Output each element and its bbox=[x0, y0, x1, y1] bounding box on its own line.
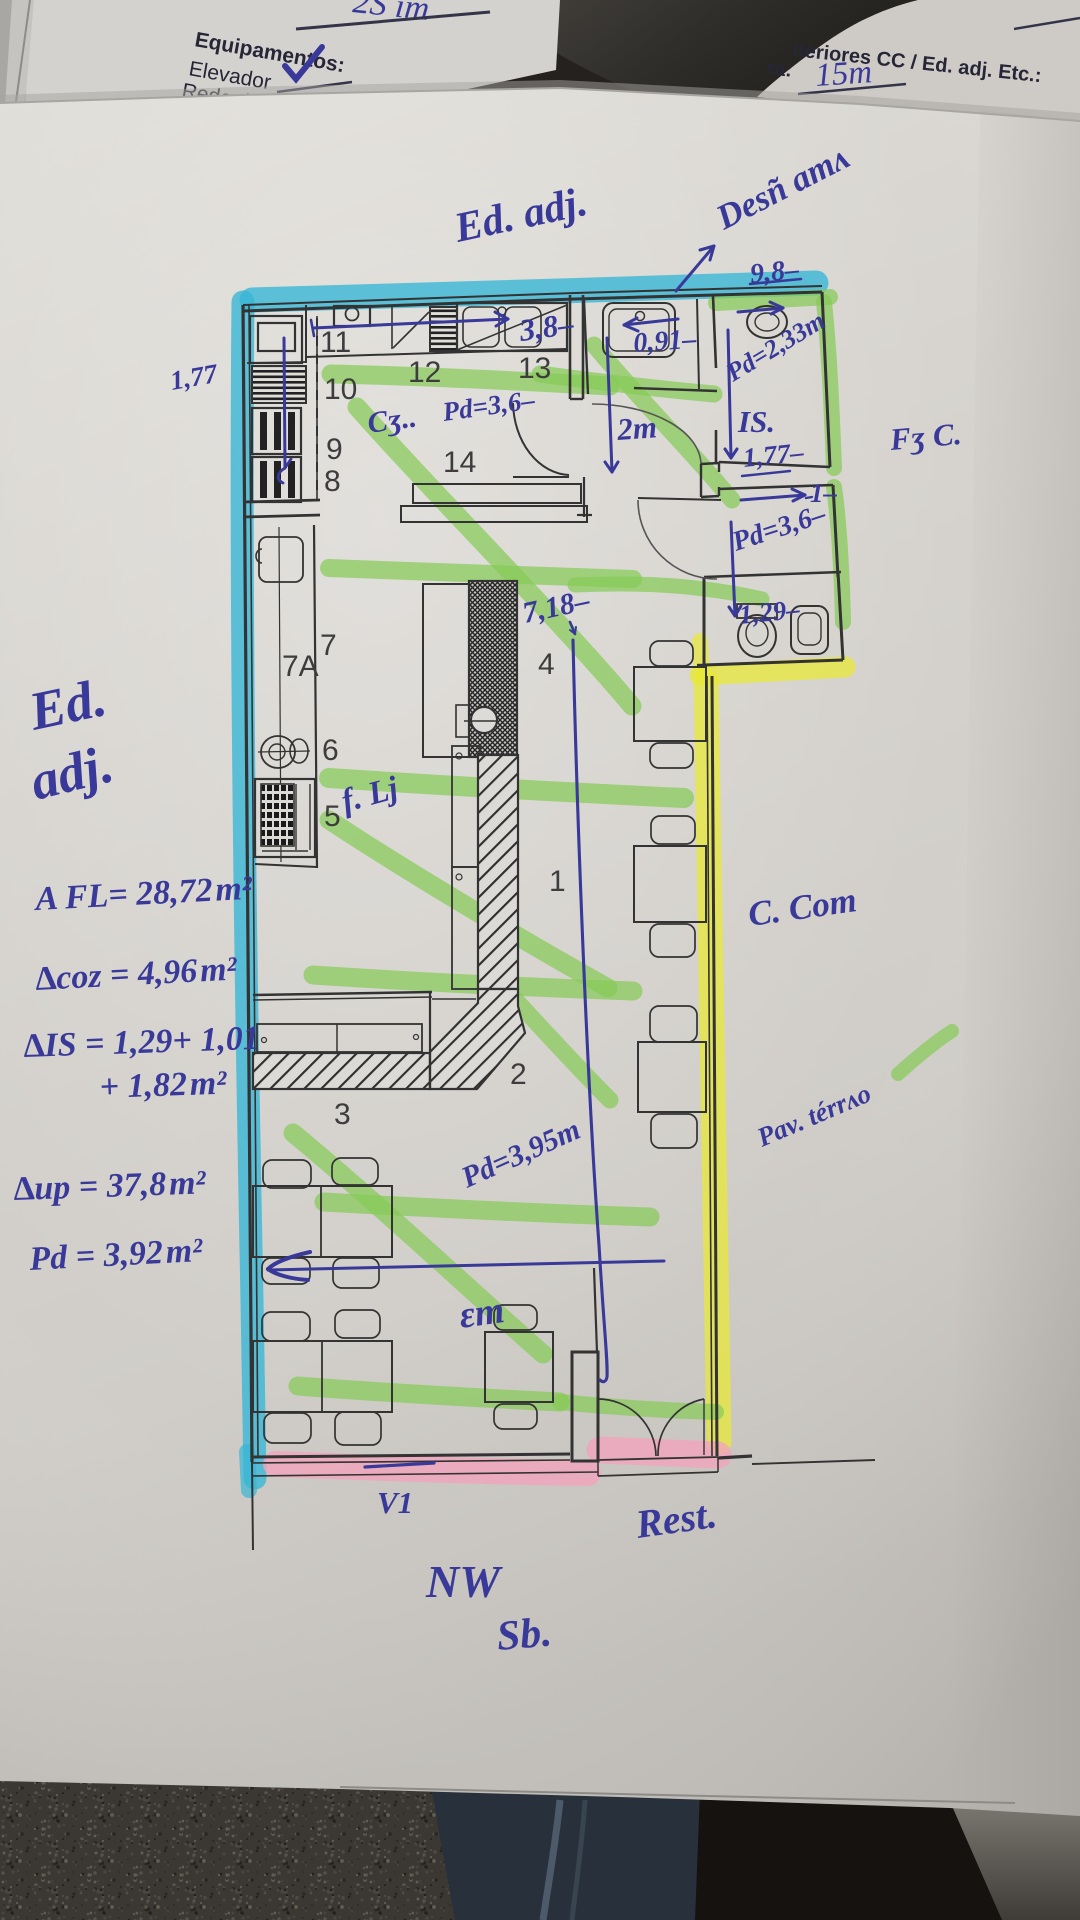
svg-text:Pd=3,6–: Pd=3,6– bbox=[440, 384, 537, 427]
svg-text:A FL= 28,72 m²: A FL= 28,72 m² bbox=[32, 870, 253, 918]
svg-text:5: 5 bbox=[324, 800, 341, 833]
svg-text:∆coz = 4,96 m²: ∆coz = 4,96 m² bbox=[34, 950, 238, 998]
svg-text:V1: V1 bbox=[377, 1485, 413, 1520]
svg-text:9,8–: 9,8– bbox=[748, 254, 800, 290]
svg-text:7A: 7A bbox=[282, 650, 319, 683]
svg-text:∆IS = 1,29+ 1,01: ∆IS = 1,29+ 1,01 bbox=[23, 1020, 260, 1065]
svg-text:1: 1 bbox=[549, 865, 566, 898]
svg-text:Rest.: Rest. bbox=[632, 1491, 720, 1547]
svg-text:12: 12 bbox=[408, 356, 441, 389]
svg-text:Pd=3,6–: Pd=3,6– bbox=[728, 498, 830, 557]
svg-text:8: 8 bbox=[324, 465, 341, 498]
svg-text:9: 9 bbox=[326, 433, 343, 466]
svg-text:1,29–: 1,29– bbox=[737, 594, 801, 630]
svg-text:0,91–: 0,91– bbox=[632, 324, 697, 359]
svg-text:Ed. adj.: Ed. adj. bbox=[450, 179, 592, 252]
svg-text:13: 13 bbox=[518, 352, 551, 385]
svg-text:Desñ amʌ: Desñ amʌ bbox=[709, 138, 855, 238]
svg-text:+ 1,82 m²: + 1,82 m² bbox=[99, 1065, 228, 1106]
svg-text:4: 4 bbox=[538, 648, 555, 681]
svg-text:εm: εm bbox=[456, 1289, 507, 1337]
svg-text:3: 3 bbox=[334, 1098, 351, 1131]
svg-text:Cʒ..: Cʒ.. bbox=[365, 400, 418, 440]
svg-text:IS.: IS. bbox=[737, 404, 775, 439]
svg-text:C. Com: C. Com bbox=[746, 880, 859, 934]
svg-text:14: 14 bbox=[443, 446, 476, 479]
svg-text:Pd=2,33m: Pd=2,33m bbox=[720, 306, 830, 388]
svg-text:2: 2 bbox=[510, 1058, 527, 1091]
svg-text:Fʒ C.: Fʒ C. bbox=[888, 416, 963, 457]
svg-text:1,77: 1,77 bbox=[168, 358, 221, 396]
svg-text:Pd = 3,92 m²: Pd = 3,92 m² bbox=[27, 1232, 204, 1278]
svg-text:11: 11 bbox=[320, 326, 351, 359]
svg-text:NW: NW bbox=[425, 1556, 503, 1607]
svg-text:Pav. térrʌo: Pav. térrʌo bbox=[752, 1078, 876, 1153]
svg-text:6: 6 bbox=[322, 734, 339, 767]
svg-text:∆up = 37,8 m²: ∆up = 37,8 m² bbox=[13, 1164, 207, 1208]
svg-text:Pd=3,95m: Pd=3,95m bbox=[456, 1113, 586, 1195]
svg-text:Sb.: Sb. bbox=[495, 1609, 554, 1660]
svg-text:7: 7 bbox=[320, 629, 337, 662]
svg-text:Ed.: Ed. bbox=[23, 667, 111, 742]
svg-text:2m: 2m bbox=[615, 409, 658, 447]
svg-text:10: 10 bbox=[324, 373, 357, 406]
svg-text:adj.: adj. bbox=[24, 733, 119, 811]
svg-text:1,77–: 1,77– bbox=[741, 437, 805, 473]
